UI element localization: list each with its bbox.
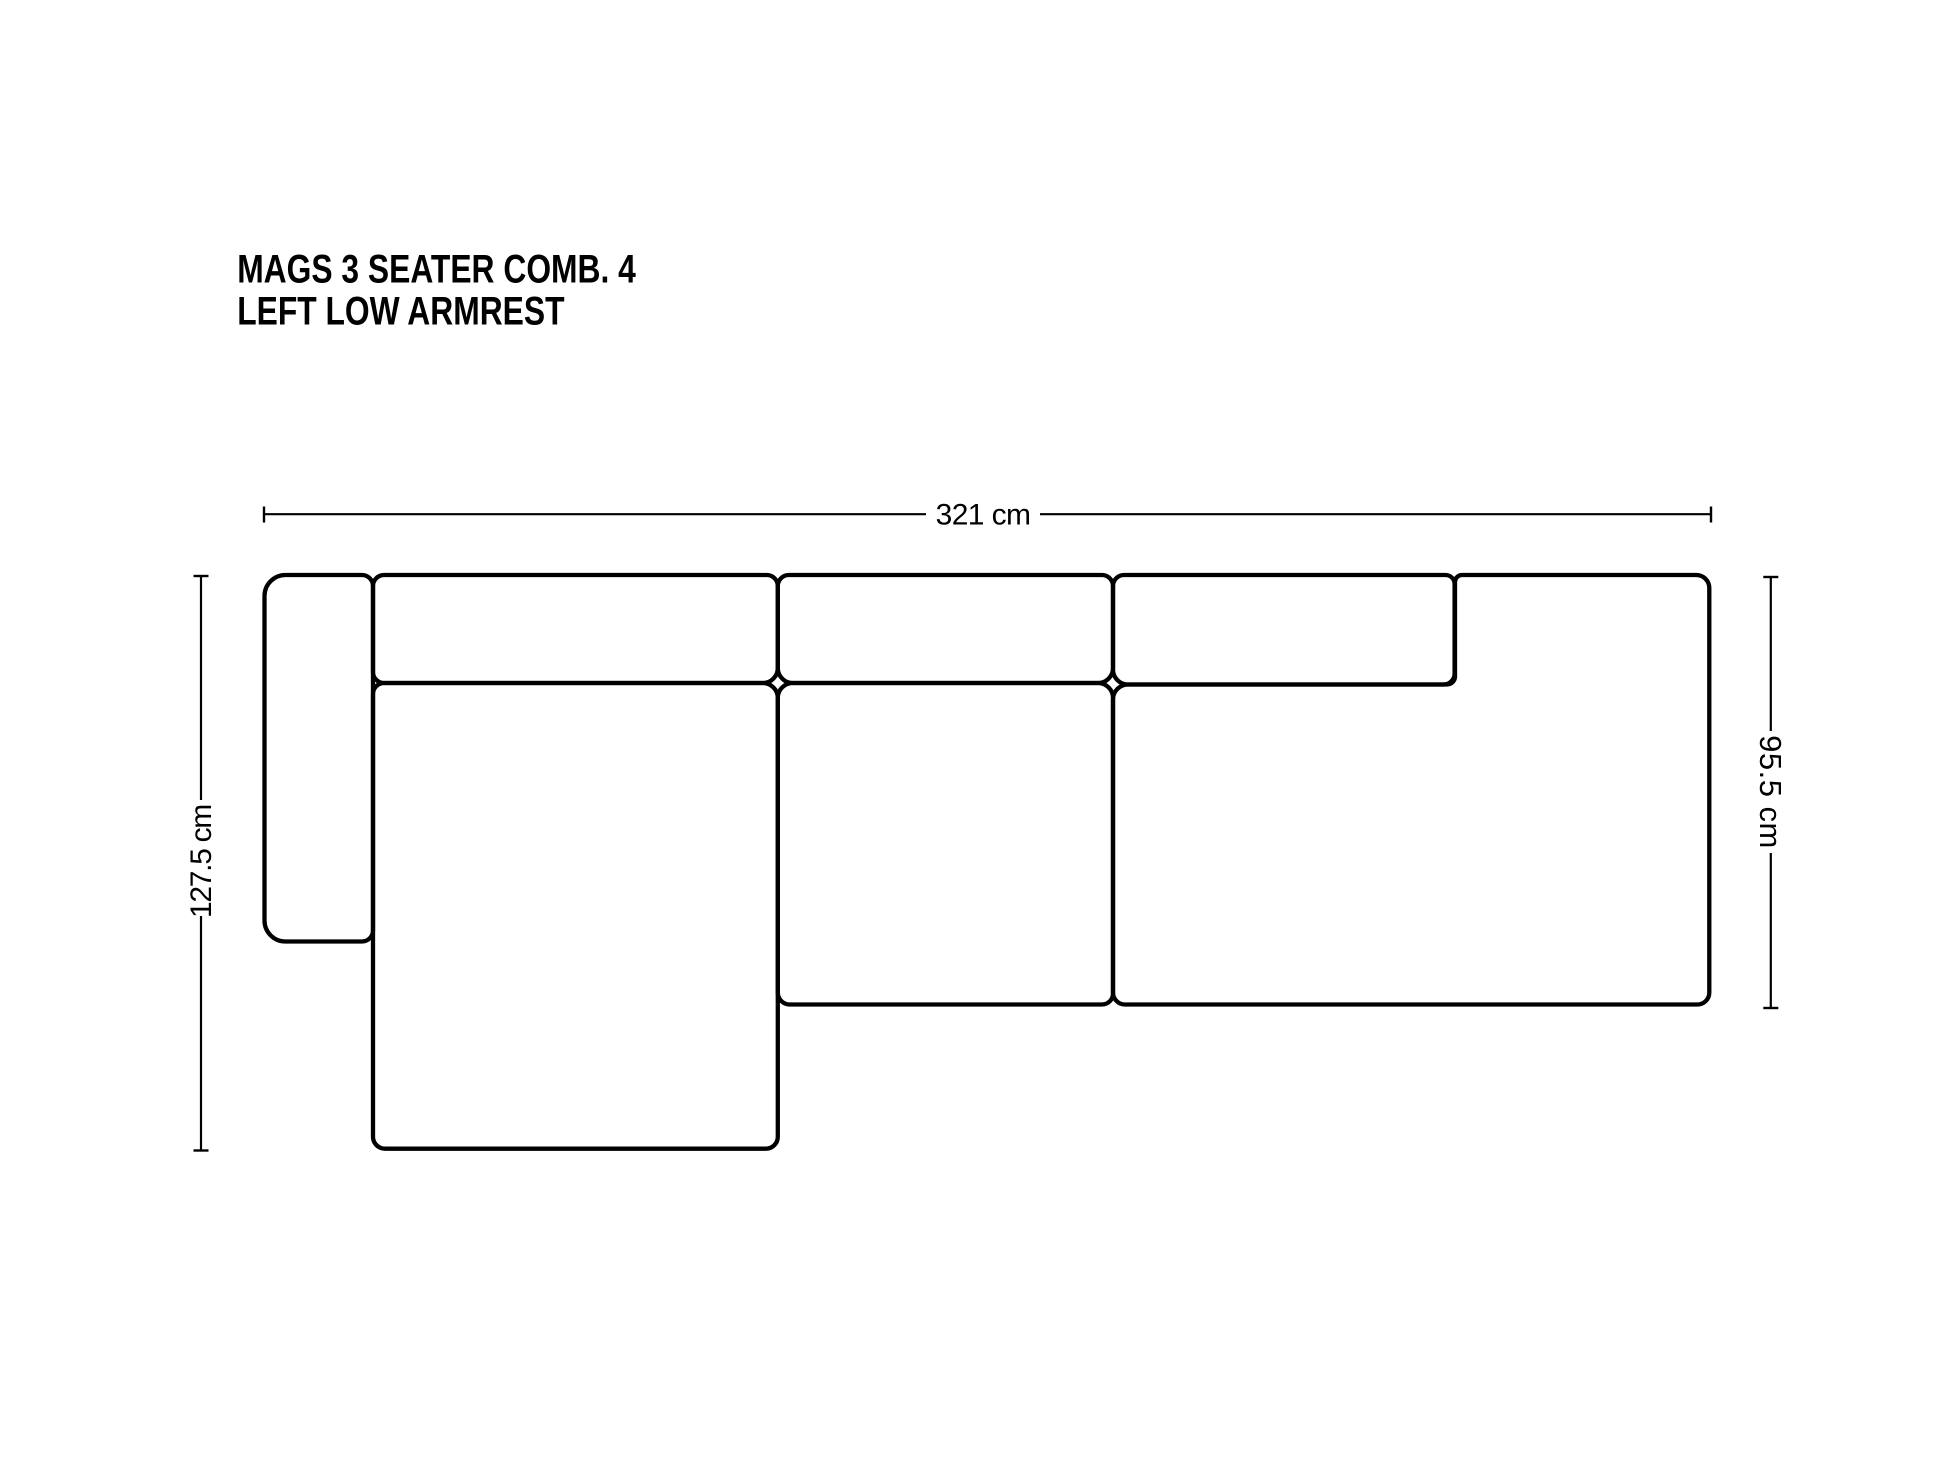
svg-text:321 cm: 321 cm <box>936 499 1031 532</box>
svg-text:MAGS 3 SEATER COMB. 4: MAGS 3 SEATER COMB. 4 <box>237 246 636 291</box>
svg-text:127.5 cm: 127.5 cm <box>185 805 218 918</box>
svg-text:LEFT LOW ARMREST: LEFT LOW ARMREST <box>237 288 564 333</box>
svg-text:95.5 cm: 95.5 cm <box>1753 735 1788 849</box>
